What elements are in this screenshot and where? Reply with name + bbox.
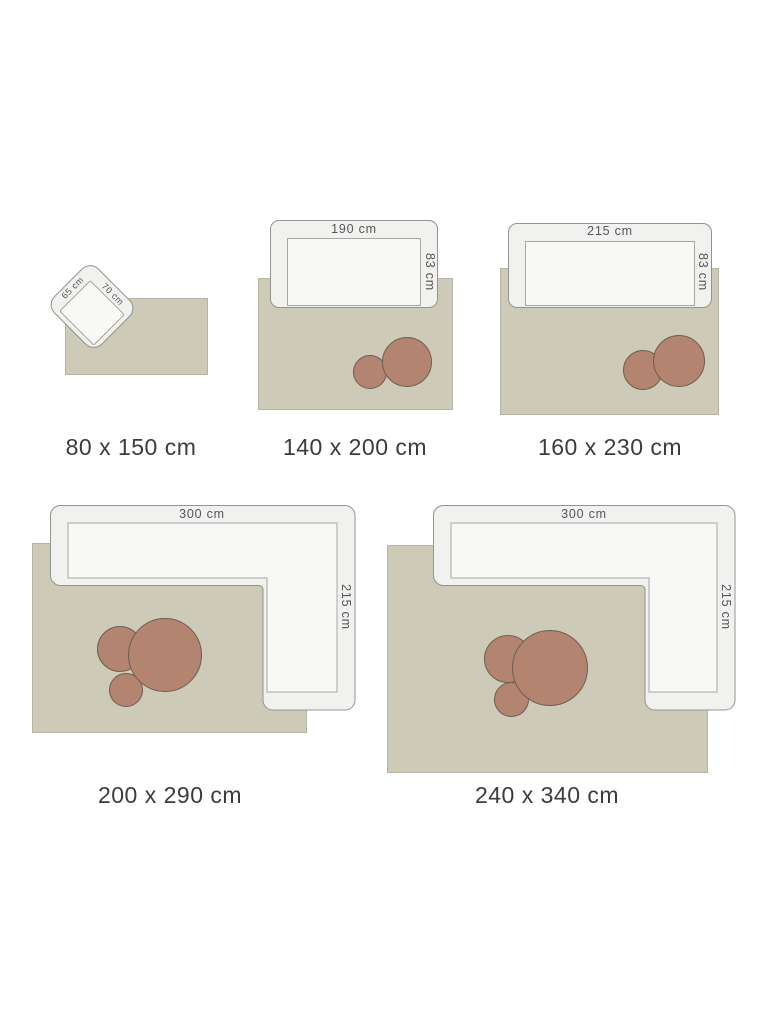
pouf-large <box>128 618 202 692</box>
size-caption-80x150: 80 x 150 cm <box>21 434 241 461</box>
size-caption-140x200: 140 x 200 cm <box>245 434 465 461</box>
corner-sofa-depth-label: 215 cm <box>719 584 733 630</box>
sofa-seat <box>525 241 695 306</box>
sofa-depth-label: 83 cm <box>696 253 710 291</box>
corner-sofa-depth-label: 215 cm <box>339 584 353 630</box>
sofa-depth-label: 83 cm <box>423 253 437 291</box>
rug-size-guide: 70 cm 65 cm 80 x 150 cm 190 cm 83 cm 140… <box>0 0 768 1024</box>
size-caption-240x340: 240 x 340 cm <box>437 782 657 809</box>
pouf-large <box>512 630 588 706</box>
corner-sofa-top-view <box>50 505 356 711</box>
pouf-large <box>382 337 432 387</box>
corner-sofa-width-label: 300 cm <box>561 507 607 521</box>
sofa-width-label: 215 cm <box>587 224 633 238</box>
size-caption-200x290: 200 x 290 cm <box>60 782 280 809</box>
sofa-seat <box>287 238 421 306</box>
pouf-large <box>653 335 705 387</box>
size-caption-160x230: 160 x 230 cm <box>500 434 720 461</box>
corner-sofa-width-label: 300 cm <box>179 507 225 521</box>
sofa-width-label: 190 cm <box>331 222 377 236</box>
